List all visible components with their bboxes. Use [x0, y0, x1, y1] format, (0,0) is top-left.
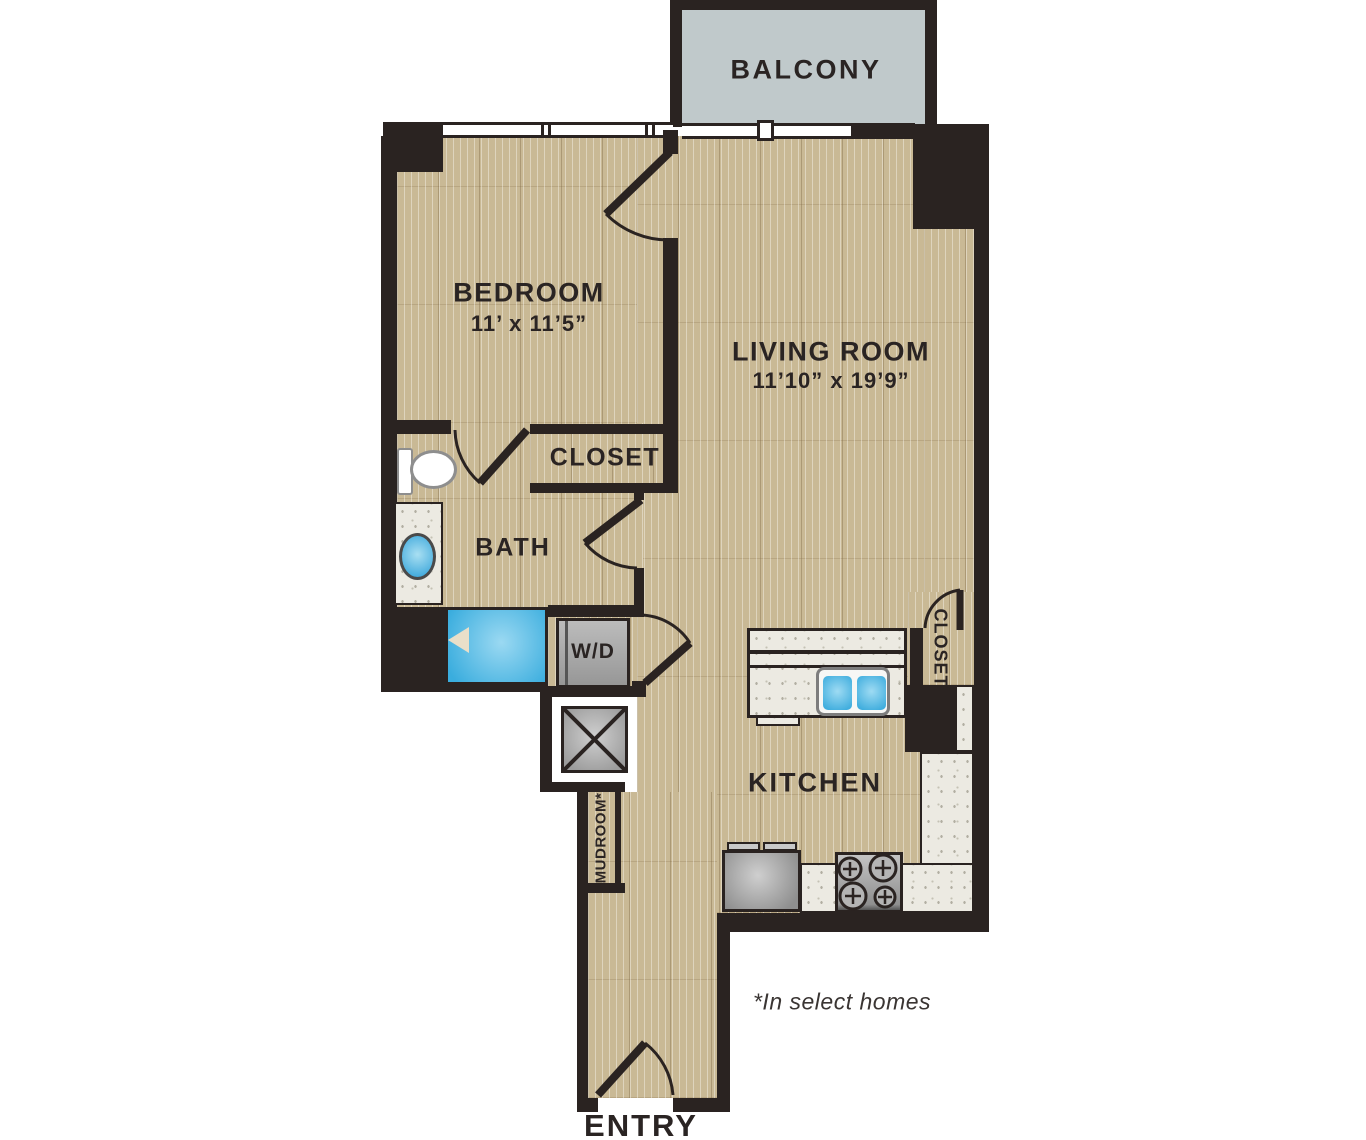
wall-divider [663, 238, 678, 492]
room-label-bath: BATH [475, 534, 551, 563]
fridge-handle [727, 842, 760, 851]
wall-column [913, 124, 989, 229]
island-tab [756, 716, 800, 726]
wall-kitchen-closet-left [910, 628, 923, 685]
wall-corridor-left [577, 792, 588, 1102]
bath-sink-icon [399, 533, 436, 580]
wall-bath-bottom [548, 605, 644, 617]
room-dims-bedroom: 11’ x 11’5” [471, 311, 587, 337]
room-label-living-room: LIVING ROOM [732, 337, 930, 368]
wall-mudroom-bottom [577, 883, 625, 893]
washer-door-line [565, 621, 568, 685]
room-label-kitchen: KITCHEN [748, 768, 882, 799]
room-label-bedroom: BEDROOM [453, 278, 605, 309]
shower-head-icon [448, 627, 469, 653]
floor-plan: BALCONY BEDROOM 11’ x 11’5” LIVING ROOM … [0, 0, 1366, 1140]
counter-right-strip [955, 685, 974, 752]
window-mullion [541, 122, 544, 138]
wall-shaft-left [540, 692, 552, 788]
room-dims-living-room: 11’10” x 19’9” [752, 368, 909, 394]
footnote: *In select homes [753, 989, 931, 1016]
balcony-wall-top [670, 0, 937, 10]
shaft-icon [561, 706, 628, 773]
wall [851, 123, 915, 139]
wall-closet-top [530, 424, 678, 434]
window-mullion [548, 122, 551, 138]
room-label-balcony: BALCONY [731, 55, 882, 86]
fridge-icon [722, 850, 801, 912]
window-mullion [652, 122, 655, 138]
fridge-handle [763, 842, 797, 851]
kitchen-sink-basin [857, 676, 886, 710]
door-hinge-stub [632, 681, 646, 697]
balcony-wall-right [925, 0, 937, 127]
stove-icon [835, 852, 903, 913]
toilet-icon [410, 450, 457, 489]
room-label-kitchen-closet: CLOSET [930, 608, 951, 687]
counter-right [920, 752, 974, 866]
room-label-closet: CLOSET [550, 444, 660, 473]
wall-bedroom-bottom [381, 420, 451, 434]
sliding-door-handle [757, 120, 774, 141]
label-washer-dryer: W/D [571, 640, 615, 664]
wall-right [974, 229, 989, 913]
room-label-mudroom: MUDROOM* [593, 793, 610, 884]
wall-closet-bottom [530, 483, 678, 493]
wall-stub [634, 483, 644, 500]
kitchen-sink-basin [823, 676, 852, 710]
window-mullion [645, 122, 648, 138]
wall-kitchen-bottom [717, 913, 989, 932]
wall-mudroom-divider [615, 792, 621, 883]
room-label-entry: ENTRY [584, 1108, 698, 1140]
island-counter-line [747, 650, 907, 654]
wall-corridor-right [717, 913, 730, 1112]
wall-mass-below-closet [905, 685, 957, 752]
wall-divider-stub [663, 130, 678, 154]
balcony-wall-left [670, 0, 682, 127]
